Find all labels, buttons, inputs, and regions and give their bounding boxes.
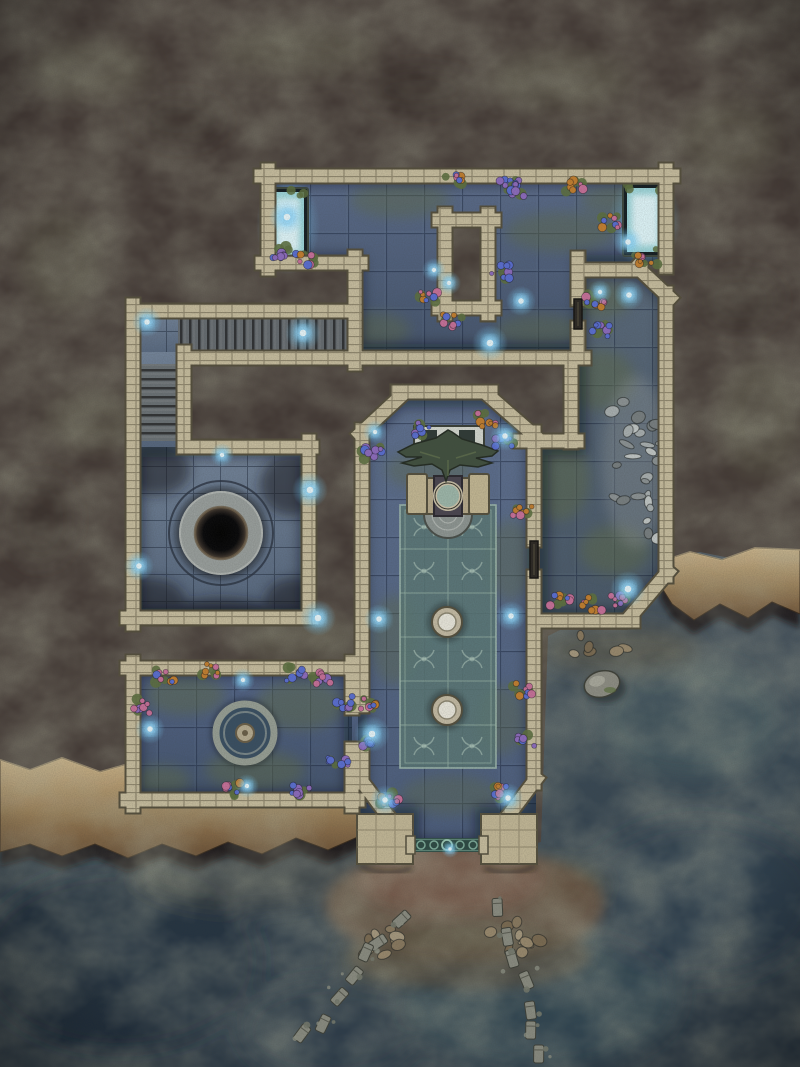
edge-vignette bbox=[0, 0, 800, 1067]
battlemap bbox=[0, 0, 800, 1067]
